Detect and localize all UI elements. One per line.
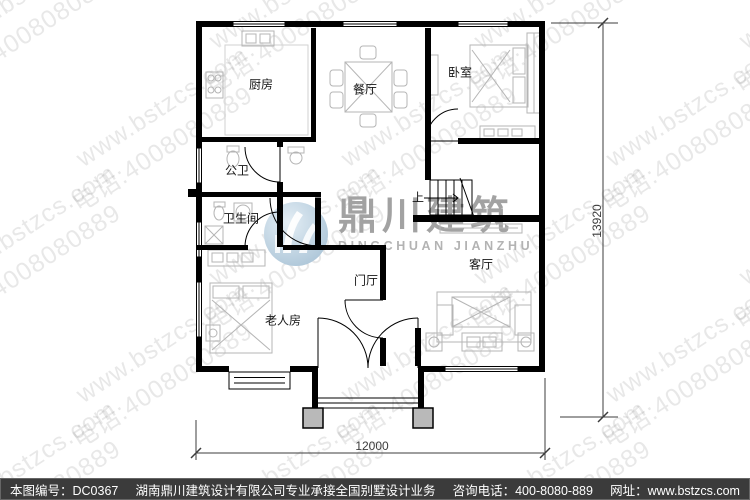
room-label-dining: 餐厅 [353,81,377,98]
dimension-height-label: 13920 [590,204,604,237]
footer-info-bar: 本图编号：DC0367 湖南鼎川建筑设计有限公司专业承接全国别墅设计业务 咨询电… [0,478,750,500]
entrance-porch [303,372,433,428]
room-label-public-bath: 公卫 [225,162,249,179]
plan-number: 本图编号：DC0367 [10,480,118,499]
website: 网址：www.bstzcs.com [610,480,740,499]
room-label-stair-direction: 上 [412,189,424,206]
room-label-kitchen: 厨房 [249,76,273,93]
dimension-width-label: 12000 [355,439,388,453]
room-label-foyer: 门厅 [354,272,378,289]
floor-plan-page: www.bstzcs.com电话:4008080889www.bstzcs.co… [0,0,750,500]
stairs [424,178,474,217]
room-label-elder-room: 老人房 [265,312,301,329]
consult-phone: 咨询电话：400-8080-889 [453,480,593,499]
room-label-bathroom: 卫生间 [223,210,259,227]
bay-window [229,372,290,389]
company-name: 湖南鼎川建筑设计有限公司专业承接全国别墅设计业务 [135,480,435,499]
porch-column [413,408,433,428]
floor-plan-drawing [0,0,750,500]
room-label-bedroom: 卧室 [448,64,472,81]
room-label-living-room: 客厅 [469,256,493,273]
porch-column [303,408,323,428]
